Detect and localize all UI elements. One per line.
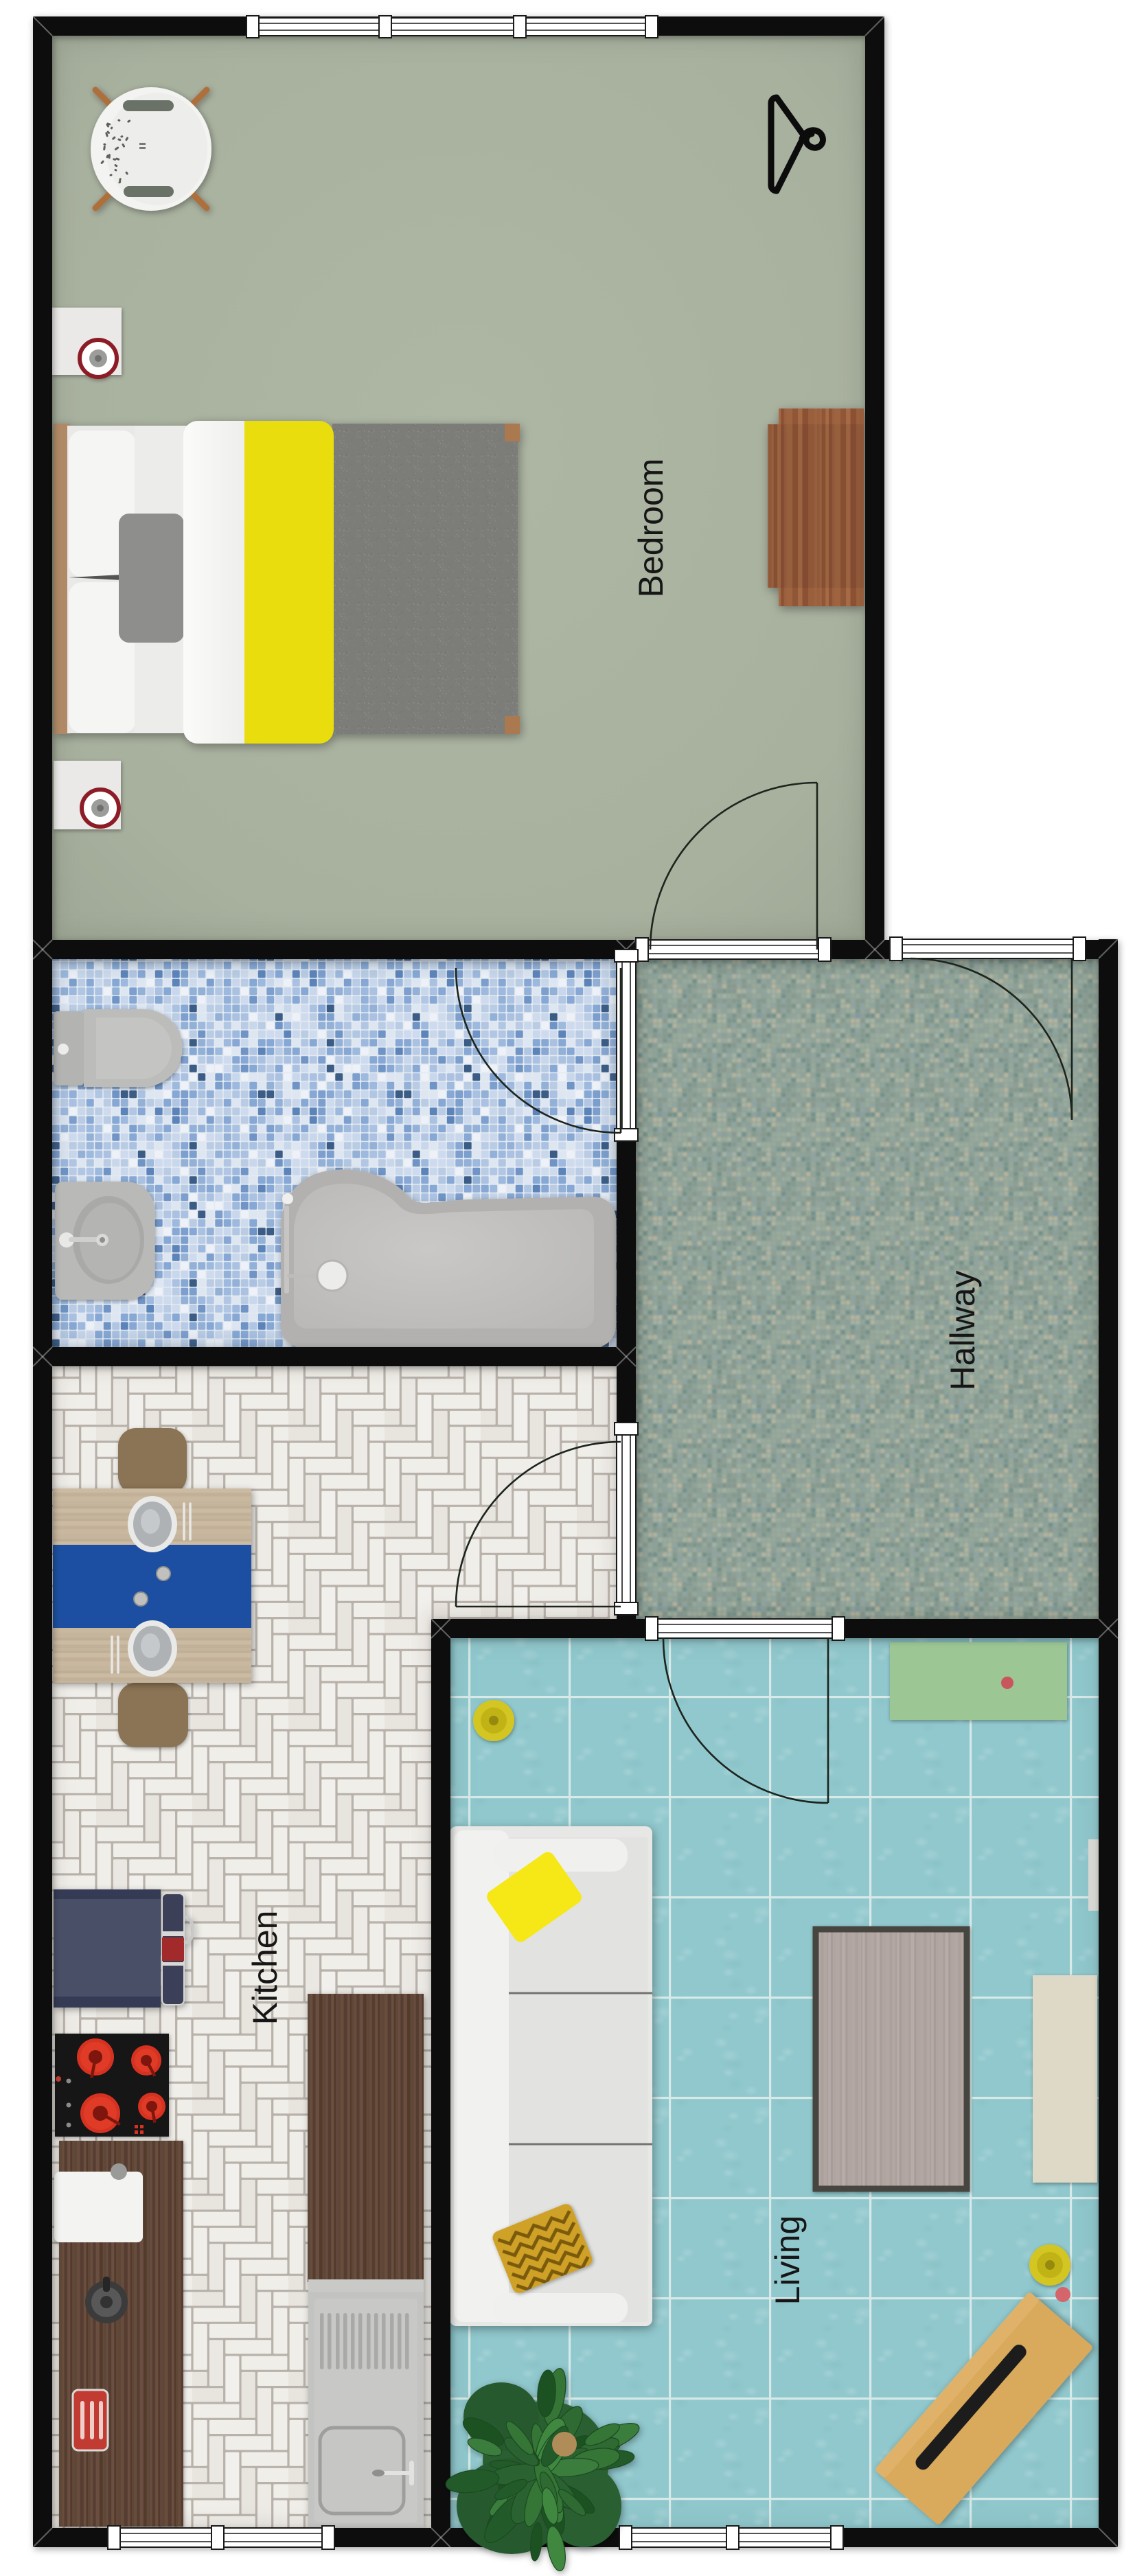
svg-text:Kitchen: Kitchen [246,1911,284,2025]
svg-text:Bedroom: Bedroom [632,459,670,598]
svg-text:Hallway: Hallway [943,1270,982,1390]
svg-text:Living: Living [768,2216,807,2305]
